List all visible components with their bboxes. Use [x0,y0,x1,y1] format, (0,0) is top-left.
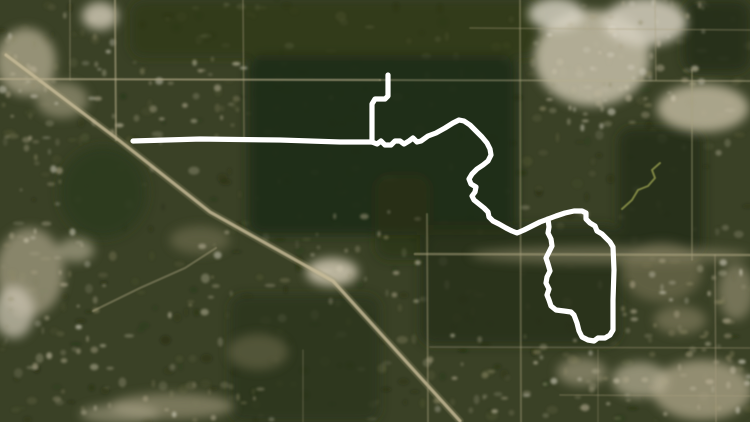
bright-area [612,362,668,398]
road-h-road-mid-east [415,254,750,255]
road-v-road-243 [243,0,244,140]
road-v-road-520 [520,0,521,422]
road-v-road-655 [655,0,656,80]
bright-area [657,84,749,132]
route-segment-west-straightaway [133,139,372,142]
road-h-road-east [380,80,750,81]
northeast-corner-forest [683,0,750,72]
mid-forest-wedge [375,175,430,260]
satellite-map-view[interactable] [0,0,750,422]
road-h-road-347 [430,347,750,348]
bright-area [82,2,118,30]
west-grove [59,146,147,238]
map-canvas [0,0,750,422]
bright-area [603,0,687,46]
road-h-road-west [0,79,380,80]
road-v-road-427 [427,214,428,422]
east-forest [618,128,703,258]
road-h-road-395 [560,395,750,396]
north-strip [130,0,540,58]
bright-area [170,226,230,254]
road-v-road-115 [115,0,116,140]
road-v-road-715 [715,255,716,422]
bright-area [228,334,288,370]
